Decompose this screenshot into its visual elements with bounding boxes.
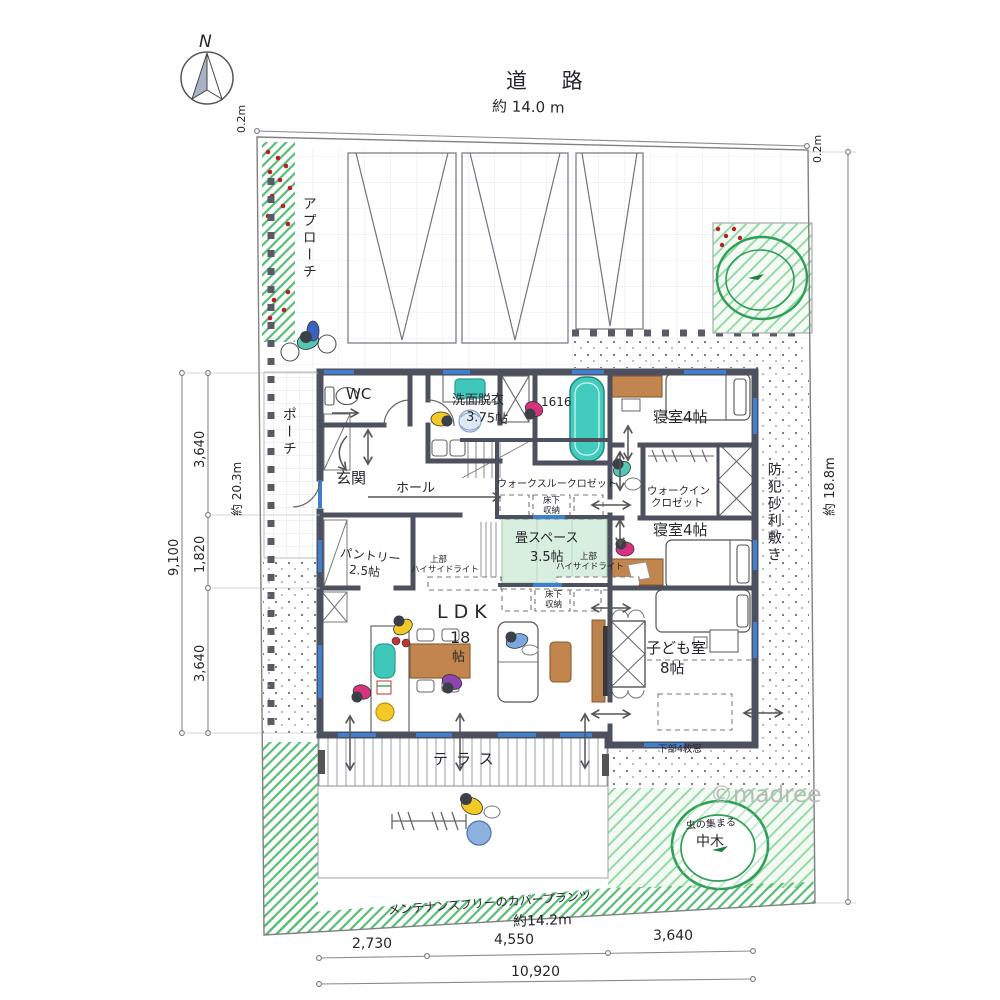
- approach-label: アプローチ: [301, 196, 316, 281]
- floor-plan-canvas: N 道 路 約 14.0 m 0.2m 0.2m アプローチ ポーチ WC 洗面…: [0, 0, 1000, 1000]
- underfloor-top-line2: 収納: [543, 507, 560, 516]
- kids-room-label: 子ども室: [646, 641, 706, 657]
- terrace-label: テラス: [433, 752, 502, 768]
- washroom-label: 洗面脱衣: [452, 394, 504, 408]
- compass: [181, 52, 233, 104]
- dim-top-width: 約 14.0 m: [492, 99, 565, 116]
- plan-drawing: [0, 0, 1000, 1000]
- dim-right-depth: 約 18.8m: [824, 457, 838, 516]
- highside-light-west: [428, 577, 501, 590]
- bedroom-north-label: 寝室4帖: [653, 410, 708, 426]
- road-label: 道 路: [506, 70, 597, 92]
- highside-west-line1: 上部: [430, 556, 447, 565]
- dim-left-seg-c: 3,640: [194, 645, 208, 682]
- underfloor-bottom-line1: 床下: [545, 591, 562, 600]
- underfloor-top-line1: 床下: [543, 497, 560, 506]
- highside-west-line2: ハイサイドライト: [411, 566, 479, 575]
- security-gravel-label: 防犯砂利敷き: [766, 462, 781, 564]
- bed: [656, 590, 750, 632]
- pantry-size-label: 2.5帖: [348, 563, 380, 579]
- highside-east-line2: ハイサイドライト: [556, 563, 624, 572]
- highside-east-line1: 上部: [580, 553, 597, 562]
- dim-bottom-total: 10,920: [511, 965, 560, 980]
- copyright-watermark: ©madree: [710, 783, 821, 807]
- walkin-closet-line1: ウォークイン: [647, 486, 710, 497]
- dim-offset-top-left: 0.2m: [236, 105, 248, 133]
- dim-offset-top-right: 0.2m: [812, 135, 824, 163]
- approach-hedge: [262, 142, 295, 342]
- desk: [710, 630, 738, 652]
- bedroom-south-label: 寝室4帖: [653, 523, 708, 539]
- dim-left-total: 9,100: [168, 539, 182, 576]
- tv-board: [592, 620, 609, 702]
- kids-closet: [611, 621, 645, 687]
- northeast-garden: [713, 223, 812, 333]
- bath-size-label: 1616: [541, 396, 572, 409]
- dim-bottom-seg-a: 2,730: [352, 937, 392, 952]
- walkin-closet-line2: クロゼット: [651, 498, 704, 509]
- dim-bottom-width: 約14.2m: [513, 913, 572, 930]
- north-label: N: [199, 34, 212, 52]
- tatami-label: 畳スペース: [515, 532, 578, 546]
- water-bucket: [467, 821, 491, 845]
- coffee-table: [550, 642, 571, 682]
- bathtub: [570, 377, 604, 461]
- south-west-planting: [263, 742, 318, 935]
- entrance-label: 玄関: [336, 471, 366, 487]
- dim-bottom-seg-b: 4,550: [494, 933, 534, 948]
- ldk-label: LDK: [437, 603, 493, 623]
- walkthrough-closet-label: ウォークスルークロゼット: [497, 480, 617, 491]
- round-stool: [376, 703, 394, 721]
- bedroom-closets: [718, 443, 755, 517]
- ldk-size-unit: 帖: [452, 651, 465, 665]
- kitchen-sink: [374, 644, 395, 678]
- underfloor-bottom-line2: 収納: [545, 601, 562, 610]
- ldk-size-num: 18: [450, 630, 470, 647]
- wc-label: WC: [346, 387, 371, 403]
- dim-left-seg-b: 1,820: [194, 536, 208, 573]
- dim-bottom-seg-c: 3,640: [653, 929, 693, 944]
- lower-window-note: 下部4枚窓: [658, 745, 702, 755]
- porch-label: ポーチ: [281, 407, 296, 458]
- tree-note-line2: 中木: [696, 835, 724, 850]
- kids-size-label: 8帖: [660, 661, 685, 677]
- hall-label: ホール: [396, 482, 435, 496]
- desk: [610, 376, 662, 397]
- dim-left-depth: 約 20.3m: [231, 462, 244, 516]
- washroom-size-label: 3.75帖: [466, 411, 509, 428]
- dim-left-seg-a: 3,640: [194, 431, 208, 468]
